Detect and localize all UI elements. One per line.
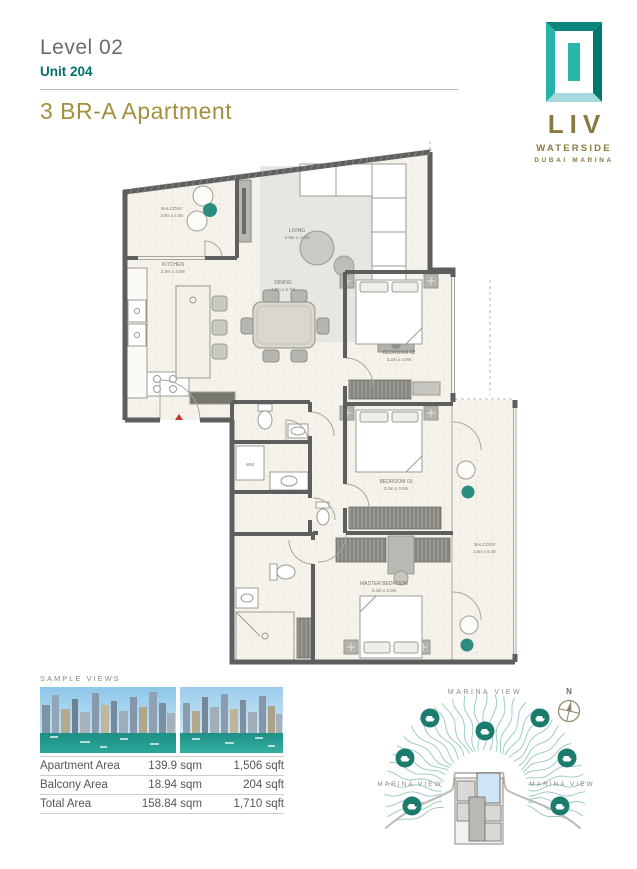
master-wardrobe-right bbox=[414, 538, 450, 562]
header: Level 02 Unit 204 3 BR-A Apartment bbox=[40, 36, 470, 125]
room-dims-living: 4.9m x 4.5m bbox=[285, 235, 310, 240]
room-dims-kitchen: 2.3m x 3.5m bbox=[161, 269, 186, 274]
boat-icon bbox=[531, 709, 550, 728]
logo-location: DUBAI MARINA bbox=[518, 157, 630, 164]
room-label-kitchen: KITCHEN bbox=[162, 262, 184, 268]
ensuite-duct bbox=[297, 618, 312, 658]
bedroom02-dresser bbox=[413, 382, 440, 395]
room-dims-balcony-r: 1.5m x 8.4m bbox=[473, 549, 497, 554]
liv-frame-icon bbox=[546, 22, 602, 102]
table-row: Balcony Area 18.94 sqm 204 sqft bbox=[40, 775, 284, 794]
sample-views-label: SAMPLE VIEWS bbox=[40, 674, 121, 683]
compass-north-label: N bbox=[566, 687, 572, 696]
logo-name: LIV bbox=[518, 109, 630, 140]
area-row-sqft: 1,506 sqft bbox=[202, 760, 284, 772]
boat-icon bbox=[396, 749, 415, 768]
bedroom02-wardrobe bbox=[349, 380, 411, 399]
master-wardrobe-left bbox=[336, 538, 386, 562]
utility-panel bbox=[237, 180, 251, 242]
room-dims-bedroom02: 3.2m x 3.9m bbox=[387, 357, 412, 362]
room-dims-dining: 4.8m x 4.7m bbox=[271, 287, 296, 292]
area-table: Apartment Area 139.9 sqm 1,506 sqft Balc… bbox=[40, 756, 284, 814]
room-label-bedroom03: BEDROOM 03 bbox=[380, 479, 413, 485]
room-dims-balcony-tl: 3.0m x 2.0m bbox=[160, 213, 184, 218]
room-label-dining: DINING bbox=[274, 280, 292, 286]
area-row-sqm: 18.94 sqm bbox=[124, 779, 202, 791]
floorplan: BALCONY 3.0m x 2.0m KITCHEN 2.3m x 3.5m … bbox=[60, 140, 530, 680]
area-row-label: Total Area bbox=[40, 798, 124, 810]
area-row-label: Balcony Area bbox=[40, 779, 124, 791]
header-divider bbox=[40, 89, 459, 90]
balcony-plant-3 bbox=[461, 639, 474, 652]
table-row: Apartment Area 139.9 sqm 1,506 sqft bbox=[40, 756, 284, 775]
area-row-sqft: 1,710 sqft bbox=[202, 798, 284, 810]
balcony-plant-2 bbox=[462, 486, 475, 499]
marina-view-label-right: MARINA VIEW bbox=[529, 781, 594, 788]
area-row-sqm: 158.84 sqm bbox=[124, 798, 202, 810]
boat-icon bbox=[476, 722, 495, 741]
boat-icon bbox=[403, 797, 422, 816]
level-label: Level 02 bbox=[40, 36, 470, 60]
boat-icon bbox=[558, 749, 577, 768]
balcony-plant-1 bbox=[203, 203, 217, 217]
room-dims-master: 4.4m x 4.0m bbox=[372, 588, 397, 593]
room-dims-bedroom03: 3.2m x 3.9m bbox=[384, 486, 409, 491]
marina-view-label-top: MARINA VIEW bbox=[448, 689, 522, 696]
wm-label: WM bbox=[246, 462, 254, 467]
boat-icon bbox=[551, 797, 570, 816]
marina-view-label-left: MARINA VIEW bbox=[377, 781, 442, 788]
compass-icon bbox=[557, 699, 581, 723]
area-row-sqm: 139.9 sqm bbox=[124, 760, 202, 772]
sample-photo-1 bbox=[40, 687, 176, 753]
room-label-bedroom02: BEDROOM 02 bbox=[383, 350, 416, 356]
page-title: 3 BR-A Apartment bbox=[40, 98, 470, 125]
area-row-label: Apartment Area bbox=[40, 760, 124, 772]
brochure-page: Level 02 Unit 204 3 BR-A Apartment LIV W… bbox=[0, 0, 637, 869]
sample-photo-2 bbox=[180, 687, 283, 753]
unit-key-plan bbox=[455, 773, 503, 844]
room-label-living: LIVING bbox=[289, 228, 306, 234]
logo-subtitle: WATERSIDE bbox=[518, 143, 630, 154]
unit-label: Unit 204 bbox=[40, 64, 470, 79]
room-label-balcony-tl: BALCONY bbox=[161, 206, 183, 211]
brand-logo: LIV WATERSIDE DUBAI MARINA bbox=[518, 22, 630, 164]
bedroom03-wardrobe bbox=[349, 507, 441, 529]
boat-icon bbox=[421, 709, 440, 728]
room-label-balcony-r: BALCONY bbox=[474, 542, 496, 547]
marina-view-diagram: N MARINA VIEW MARINA VIEW MARINA VIEW bbox=[368, 676, 628, 866]
room-label-master: MASTER BEDROOM bbox=[360, 581, 408, 587]
area-row-sqft: 204 sqft bbox=[202, 779, 284, 791]
table-row: Total Area 158.84 sqm 1,710 sqft bbox=[40, 794, 284, 814]
